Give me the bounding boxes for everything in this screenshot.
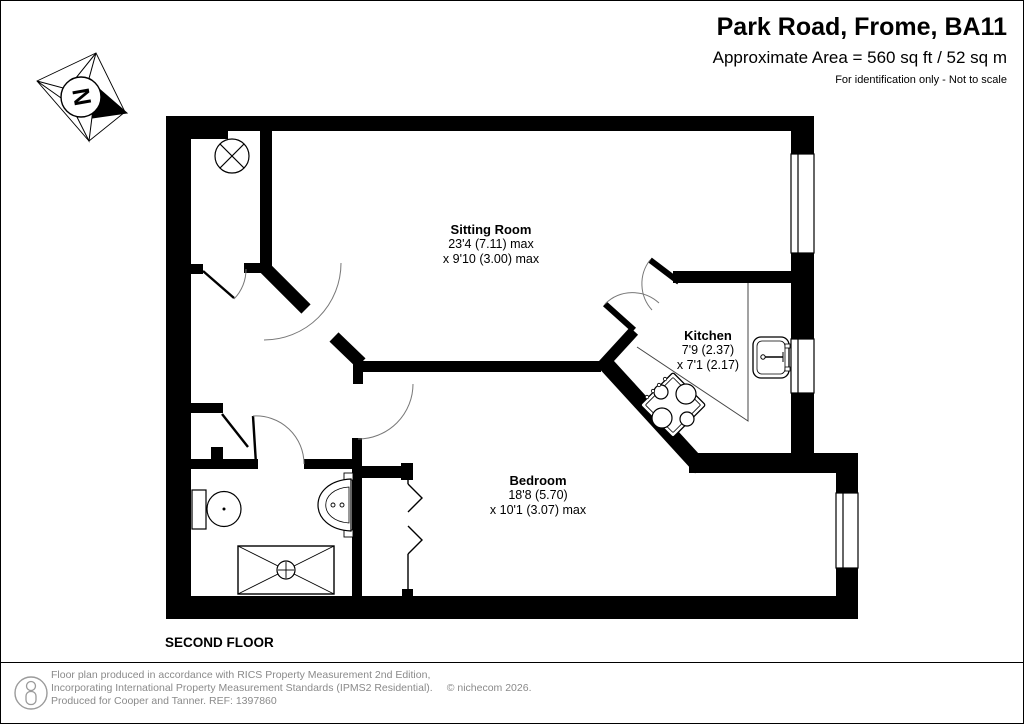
bedroom-label: Bedroom 18'8 (5.70) x 10'1 (3.07) max [490,473,586,518]
person-logo-icon [9,671,53,715]
copyright: © nichecom 2026. [447,682,532,694]
basin [318,473,353,537]
windows [791,154,858,568]
bathroom-door [253,416,304,464]
bedroom-door [358,384,413,439]
footer-text: Floor plan produced in accordance with R… [51,669,532,708]
cupboard-door [222,414,248,447]
kitchen-window [791,339,814,393]
room-dim: x 10'1 (3.07) max [490,503,586,518]
sitting-room-window [791,154,814,253]
compass-north-icon: N [37,53,127,141]
floorplan-page: Park Road, Frome, BA11 Approximate Area … [0,0,1024,724]
room-name: Sitting Room [443,222,539,237]
room-name: Bedroom [490,473,586,488]
room-dim: x 9'10 (3.00) max [443,252,539,267]
footer-line1: Floor plan produced in accordance with R… [51,669,532,682]
bedroom-window [836,493,858,568]
room-name: Kitchen [677,328,739,343]
footer: Floor plan produced in accordance with R… [1,663,1023,723]
floor-label: SECOND FLOOR [165,635,274,650]
room-dim: 18'8 (5.70) [490,488,586,503]
shower-tray [238,546,334,594]
floorplan-drawing: N [1,1,1023,723]
doors [203,260,679,591]
kitchen-double-doors [605,260,679,330]
room-dim: 7'9 (2.37) [677,343,739,358]
kitchen-sink [753,337,790,378]
room-dim: 23'4 (7.11) max [443,237,539,252]
room-dim: x 7'1 (2.17) [677,358,739,373]
entrance-door [203,269,246,299]
sitting-room-label: Sitting Room 23'4 (7.11) max x 9'10 (3.0… [443,222,539,267]
toilet [192,490,241,529]
hob [640,372,705,437]
footer-line3: Produced for Cooper and Tanner. REF: 139… [51,695,532,708]
footer-line2: Incorporating International Property Mea… [51,682,532,695]
wardrobe-bifold-doors [408,478,422,591]
light-symbol [215,139,249,173]
kitchen-label: Kitchen 7'9 (2.37) x 7'1 (2.17) [677,328,739,373]
